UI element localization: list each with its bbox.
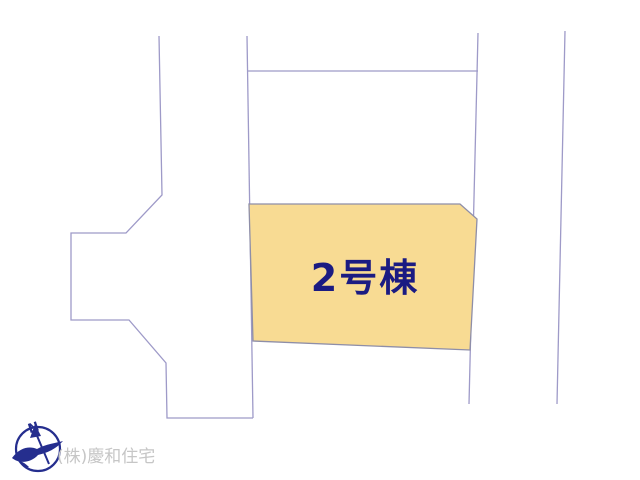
building-label: 2号棟 bbox=[311, 256, 419, 300]
parcel-boundary-far-right bbox=[557, 31, 565, 404]
parcel-boundary-left-road bbox=[71, 36, 253, 418]
plot-map: 2号棟 N (株)慶和住宅 bbox=[0, 0, 640, 480]
compass-north-icon: N bbox=[12, 420, 63, 471]
company-watermark: (株)慶和住宅 bbox=[57, 447, 155, 467]
compass-bird-shape bbox=[12, 441, 63, 462]
plot-map-drawing: 2号棟 N (株)慶和住宅 bbox=[0, 0, 640, 480]
north-label: N bbox=[26, 420, 41, 438]
